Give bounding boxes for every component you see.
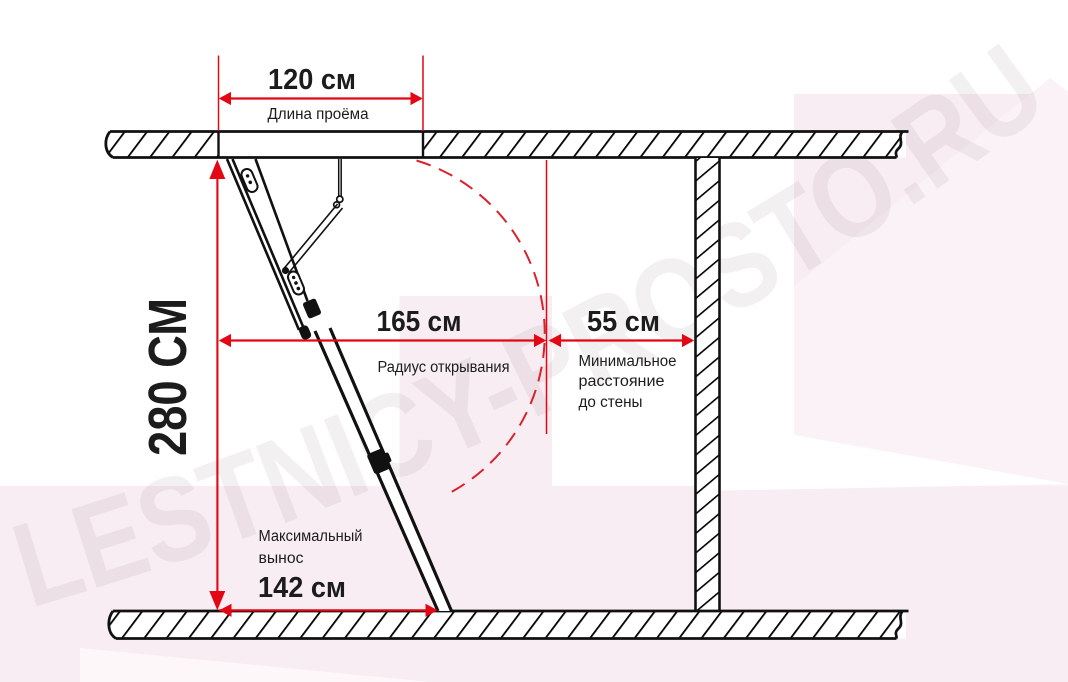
svg-text:Радиус открывания: Радиус открывания bbox=[378, 359, 510, 376]
svg-text:до стены: до стены bbox=[579, 394, 643, 411]
svg-text:280 СМ: 280 СМ bbox=[138, 298, 198, 456]
svg-text:55 см: 55 см bbox=[587, 306, 660, 338]
svg-text:вынос: вынос bbox=[259, 550, 304, 567]
svg-text:Максимальный: Максимальный bbox=[259, 528, 363, 545]
svg-text:Длина проёма: Длина проёма bbox=[268, 106, 369, 123]
svg-text:Минимальное: Минимальное bbox=[579, 353, 677, 370]
svg-text:120 см: 120 см bbox=[268, 64, 356, 96]
svg-text:165 см: 165 см bbox=[377, 306, 462, 338]
svg-text:142 см: 142 см bbox=[258, 572, 346, 604]
svg-text:расстояние: расстояние bbox=[579, 373, 665, 390]
